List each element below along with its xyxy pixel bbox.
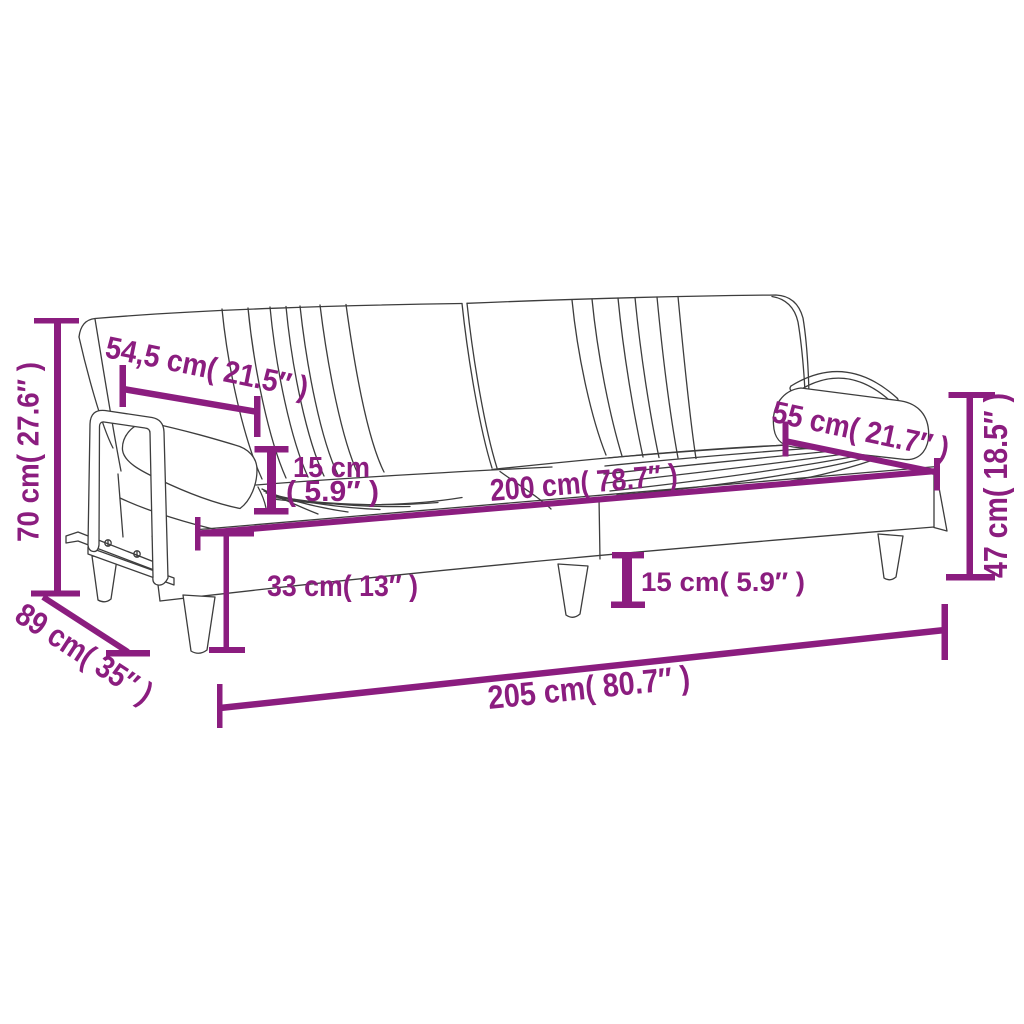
svg-text:33 cm( 13″ ): 33 cm( 13″ ): [267, 570, 418, 603]
svg-text:( 5.9″ ): ( 5.9″ ): [286, 476, 379, 508]
svg-text:70 cm( 27.6″ ): 70 cm( 27.6″ ): [11, 362, 46, 542]
svg-text:15 cm( 5.9″ ): 15 cm( 5.9″ ): [641, 567, 805, 597]
svg-text:47 cm( 18.5″ ): 47 cm( 18.5″ ): [977, 393, 1014, 578]
